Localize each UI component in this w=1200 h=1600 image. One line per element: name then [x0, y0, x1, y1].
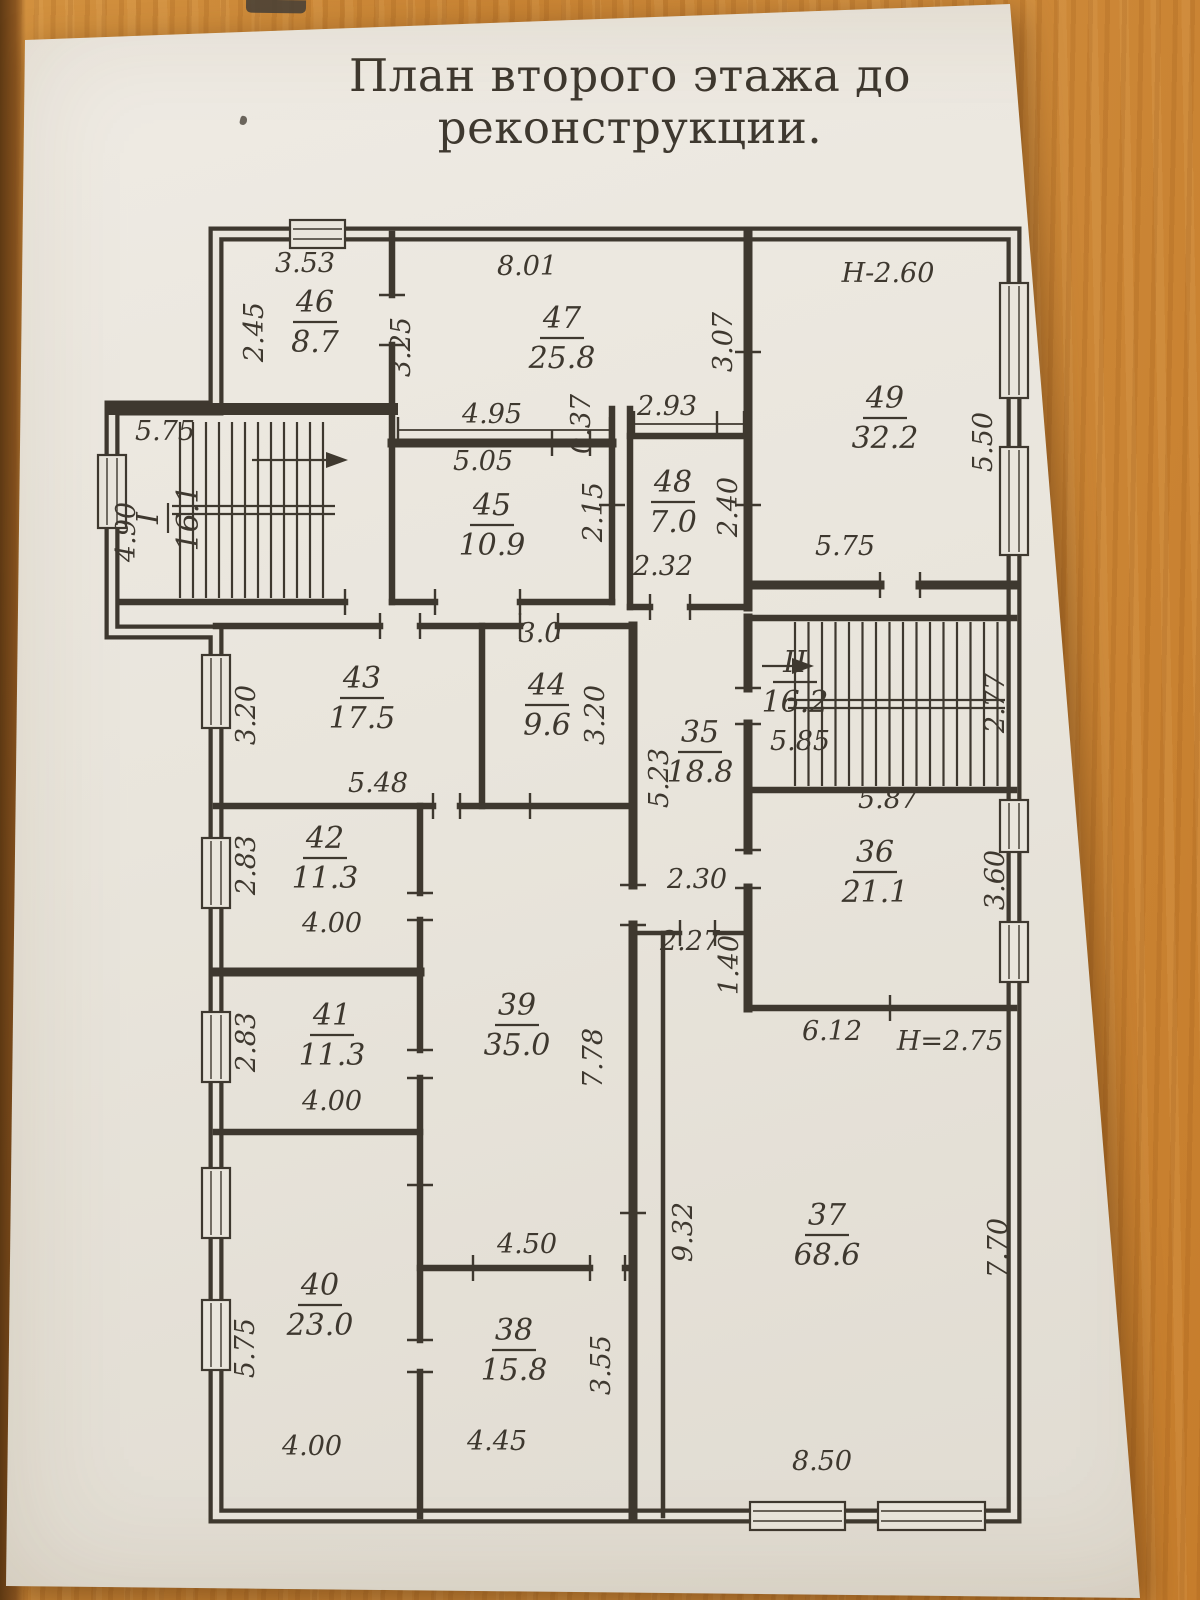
dimension-label: 4.00: [281, 1431, 342, 1462]
room-label-43: 4317.5: [329, 661, 396, 736]
photo-of-floor-plan: { "colors": { "ink": "#3e382f", "paper":…: [0, 0, 1200, 1600]
dimension-label: 2.77: [980, 672, 1011, 734]
room-number: 41: [312, 998, 351, 1033]
plan-labels: 468.74725.84932.24510.9487.0I16.14317.54…: [111, 248, 1014, 1477]
room-area: 15.8: [481, 1353, 548, 1388]
room-number: 35: [681, 715, 719, 750]
room-area: 7.0: [649, 505, 697, 540]
room-label-48: 487.0: [649, 465, 697, 540]
room-number: 36: [856, 835, 894, 870]
dimension-label: Н-2.60: [841, 258, 935, 289]
room-label-37: 3768.6: [794, 1198, 861, 1273]
dimension-label: 7.70: [983, 1218, 1014, 1278]
dimension-label: 5.48: [348, 768, 408, 799]
room-area: 8.7: [291, 325, 340, 360]
window-icon: [202, 655, 230, 728]
stair-direction-arrow: [326, 452, 348, 468]
dimension-label: 3.20: [231, 685, 262, 745]
room-area: 9.6: [523, 708, 571, 743]
dimension-label: 2.83: [231, 1012, 262, 1073]
dimension-label: 8.01: [497, 251, 557, 282]
dimension-label: 5.50: [968, 412, 999, 472]
dimension-label: 2.45: [239, 302, 270, 363]
room-label-46: 468.7: [291, 285, 340, 360]
dimension-label: 5.75: [135, 416, 195, 447]
room-number: 38: [495, 1313, 533, 1348]
room-area: 17.5: [329, 701, 396, 736]
dimension-label: 5.87: [858, 784, 919, 815]
room-label-38: 3815.8: [481, 1313, 548, 1388]
room-number: 47: [542, 301, 582, 336]
dimension-label: 3.0: [519, 618, 562, 649]
dimension-label: 5.85: [770, 726, 830, 757]
room-label-41: 4111.3: [299, 998, 366, 1073]
room-area: 11.3: [299, 1038, 366, 1073]
room-label-35: 3518.8: [667, 715, 734, 790]
room-number: 48: [653, 465, 692, 500]
window-icon: [202, 1300, 230, 1370]
window-icon: [202, 838, 230, 908]
room-label-II: II16.2: [762, 645, 829, 720]
dimension-label: 8.50: [792, 1446, 852, 1477]
dimension-label: 5.75: [230, 1318, 261, 1378]
window-icon: [290, 220, 345, 248]
room-area: 16.2: [762, 685, 829, 720]
room-number: 40: [300, 1268, 339, 1303]
window-icon: [202, 1168, 230, 1238]
dimension-label: Н=2.75: [896, 1026, 1003, 1057]
dimension-label: 1.40: [714, 935, 745, 995]
dimension-label: 4.95: [461, 399, 522, 430]
room-area: 68.6: [794, 1238, 861, 1273]
dimension-label: 5.23: [644, 748, 675, 808]
dimension-label: 2.83: [231, 835, 262, 896]
room-label-39: 3935.0: [484, 988, 551, 1063]
dimension-label: 6.12: [802, 1016, 862, 1047]
dimension-label: 4.00: [301, 1086, 362, 1117]
dimension-label: 3.53: [275, 248, 335, 279]
dimension-label: 5.75: [815, 531, 875, 562]
window-icon: [1000, 922, 1028, 982]
dimension-label: 2.30: [666, 864, 727, 895]
floor-plan-drawing: 468.74725.84932.24510.9487.0I16.14317.54…: [0, 0, 1200, 1600]
room-label-47: 4725.8: [528, 301, 596, 376]
room-area: 16.1: [171, 485, 206, 552]
dimension-label: 2.32: [632, 551, 693, 582]
room-number: 39: [498, 988, 536, 1023]
dimension-label: 3.20: [580, 685, 611, 745]
room-area: 18.8: [667, 755, 734, 790]
room-area: 23.0: [286, 1308, 354, 1343]
window-icon: [1000, 447, 1028, 555]
dimension-label: 0.37: [566, 393, 597, 454]
dimension-label: 3.55: [586, 1335, 617, 1395]
room-number: 49: [865, 381, 904, 416]
room-number: 42: [305, 821, 344, 856]
room-number: 44: [527, 668, 566, 703]
room-area: 11.3: [292, 861, 359, 896]
window-icon: [202, 1012, 230, 1082]
room-area: 35.0: [484, 1028, 551, 1063]
room-area: 10.9: [459, 528, 526, 563]
room-number: 37: [808, 1198, 847, 1233]
window-icon: [1000, 283, 1028, 398]
window-icon: [1000, 800, 1028, 852]
dimension-label: 4.50: [496, 1229, 557, 1260]
room-number: 46: [295, 285, 334, 320]
dimension-label: 3.07: [708, 311, 739, 372]
room-label-I: I16.1: [131, 485, 206, 552]
dimension-label: 2.93: [636, 391, 697, 422]
dimension-label: 9.32: [668, 1202, 699, 1262]
room-label-49: 4932.2: [852, 381, 919, 456]
dimension-label: 7.78: [578, 1028, 609, 1088]
room-number: 45: [472, 488, 511, 523]
window-icon: [878, 1502, 985, 1530]
dimension-label: 3.25: [386, 317, 417, 377]
room-number: II: [782, 645, 808, 680]
dimension-label: 5.05: [453, 446, 513, 477]
dimension-label: 2.27: [659, 926, 721, 957]
room-label-36: 3621.1: [841, 835, 909, 910]
room-label-42: 4211.3: [292, 821, 359, 896]
room-area: 25.8: [528, 341, 596, 376]
dimension-label: 2.40: [713, 477, 744, 538]
dimension-label: 4.00: [301, 908, 362, 939]
dimension-label: 3.60: [980, 850, 1011, 910]
window-icon: [750, 1502, 845, 1530]
dimension-label: 2.15: [578, 482, 609, 543]
room-number: 43: [342, 661, 381, 696]
room-area: 21.1: [841, 875, 909, 910]
dimension-label: 4.90: [111, 502, 142, 563]
dimension-label: 4.45: [466, 1426, 527, 1457]
room-label-40: 4023.0: [286, 1268, 354, 1343]
room-label-45: 4510.9: [459, 488, 526, 563]
room-area: 32.2: [852, 421, 919, 456]
room-label-44: 449.6: [523, 668, 571, 743]
